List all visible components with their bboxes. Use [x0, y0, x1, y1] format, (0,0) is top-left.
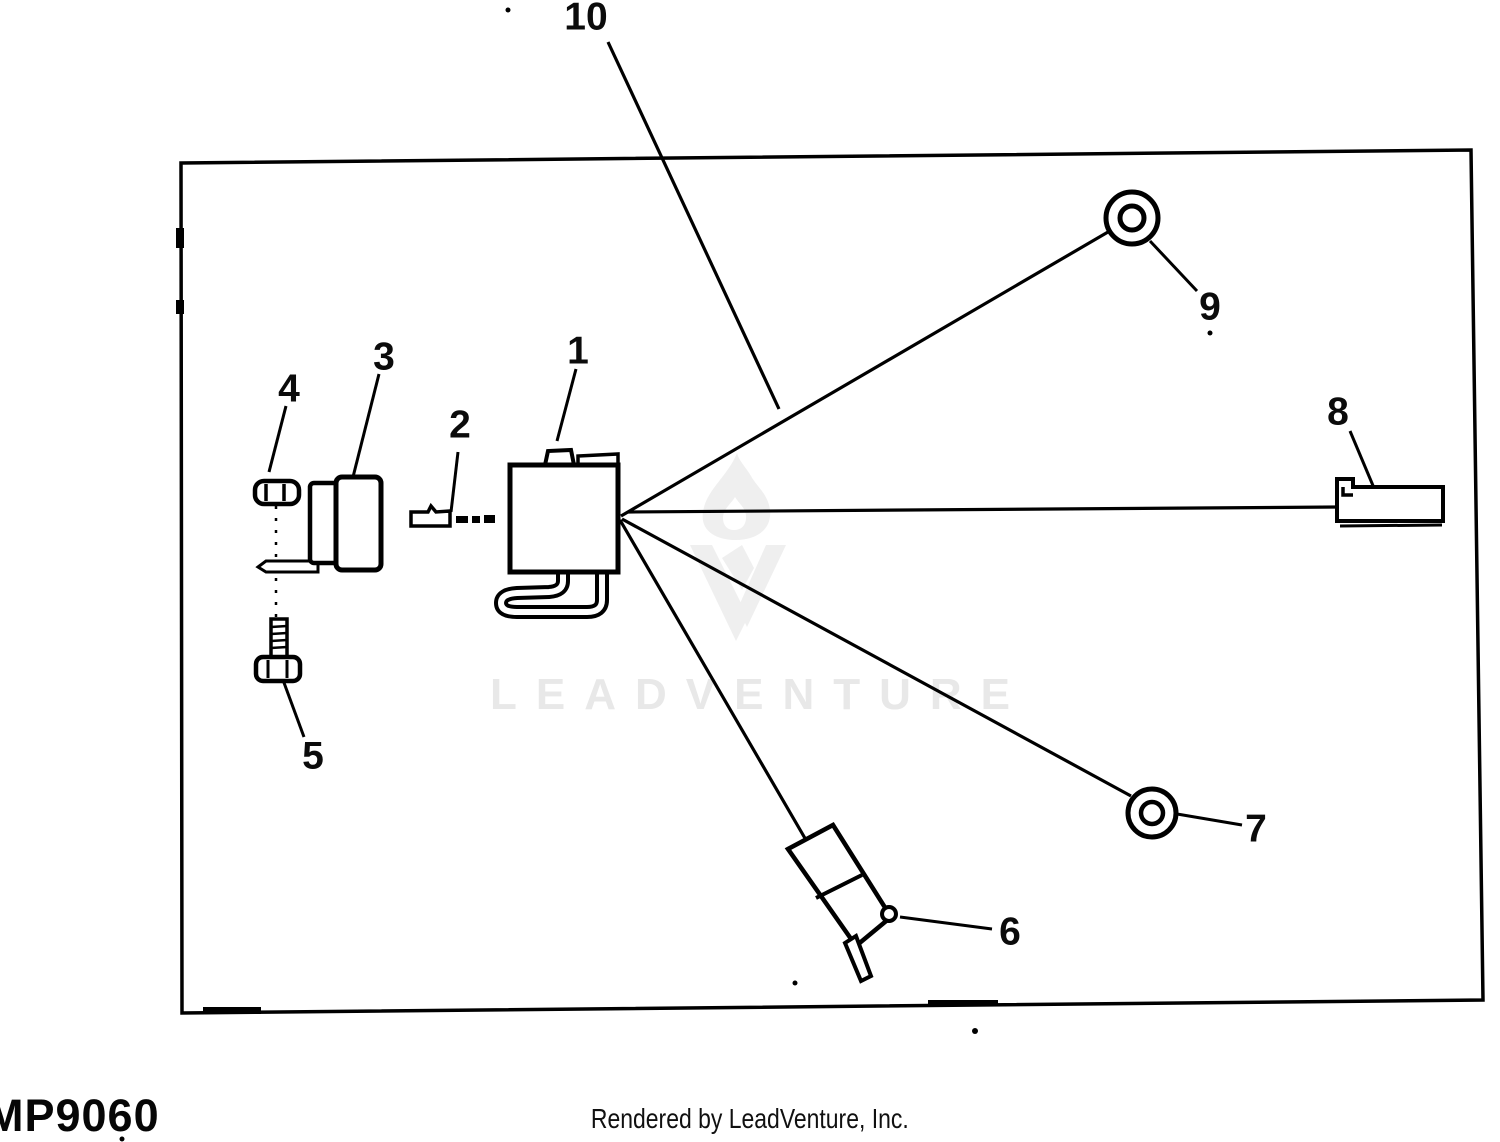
part-4-hex-nut: [255, 481, 299, 504]
rendered-by-credit: Rendered by LeadVenture, Inc.: [0, 1103, 1500, 1135]
speck-dot: [506, 8, 511, 13]
plug-tab: [845, 936, 871, 981]
part-8-connector-housing: [1337, 479, 1443, 526]
callout-8[interactable]: 8: [1327, 393, 1349, 432]
leader-line-to-8: [628, 507, 1338, 512]
callout-7[interactable]: 7: [1245, 810, 1267, 849]
leader-line-7: [1177, 814, 1242, 825]
plug-pin: [882, 907, 896, 921]
ring-inner: [1141, 802, 1163, 824]
speck-dot: [972, 1028, 978, 1034]
border-scan-mark: [176, 300, 184, 314]
callout-1[interactable]: 1: [567, 332, 589, 371]
speck-dot: [1208, 331, 1213, 336]
flame-shape: [703, 453, 771, 540]
callout-4[interactable]: 4: [278, 370, 300, 409]
callout-10[interactable]: 10: [564, 0, 607, 37]
part-9-grommet-ring: [1106, 192, 1158, 244]
speck-dot: [793, 981, 798, 986]
part-3-bracket-main: [336, 477, 381, 570]
plate-dash: [472, 516, 480, 523]
module-body: [510, 465, 618, 572]
leader-line-4: [269, 406, 286, 472]
part-345-fastener-stack: [255, 477, 381, 681]
bolt-head: [256, 657, 300, 681]
callout-5[interactable]: 5: [302, 737, 324, 776]
leader-line-3: [353, 374, 379, 477]
leader-line-2: [451, 452, 458, 512]
scan-specks: [120, 8, 1213, 1142]
leader-line-to-9: [621, 232, 1108, 516]
nut-body: [255, 481, 299, 504]
part-7-grommet-ring: [1128, 789, 1176, 837]
bolt-thread: [271, 647, 287, 648]
leader-line-9: [1150, 241, 1197, 291]
rendered-by-text: Rendered by LeadVenture, Inc.: [591, 1103, 909, 1135]
callout-leader-lines: [269, 241, 1374, 929]
callout-9[interactable]: 9: [1199, 288, 1221, 327]
callout-6[interactable]: 6: [999, 913, 1021, 952]
leader-line-1: [557, 369, 576, 441]
bolt-thread: [271, 640, 287, 641]
callout-2[interactable]: 2: [449, 406, 471, 445]
part-2-mounting-plate: [411, 506, 495, 526]
diagram-canvas: [0, 0, 1500, 1142]
parts-diagram-page: LEADVENTURE: [0, 0, 1500, 1142]
ring-inner: [1120, 206, 1144, 230]
harness-leader-lines: [608, 42, 1338, 840]
watermark-logo-icon: [690, 453, 786, 641]
housing-underline: [1340, 525, 1442, 526]
part-5-bolt: [256, 619, 300, 681]
bolt-thread: [271, 633, 287, 634]
plate-dash: [484, 515, 495, 523]
leader-line-6: [900, 917, 992, 929]
border-scan-mark: [928, 1000, 998, 1006]
callout-3[interactable]: 3: [373, 338, 395, 377]
leader-line-5: [283, 680, 304, 737]
plate-dash: [456, 516, 468, 523]
border-scan-mark: [203, 1007, 261, 1014]
plate-body: [411, 506, 450, 526]
bolt-thread: [271, 626, 287, 627]
part-1-control-module: [501, 450, 618, 612]
border-scan-mark: [176, 228, 184, 248]
housing-body: [1337, 479, 1443, 521]
part-6-connector-plug: [788, 825, 896, 981]
leader-line-10: [608, 42, 779, 409]
